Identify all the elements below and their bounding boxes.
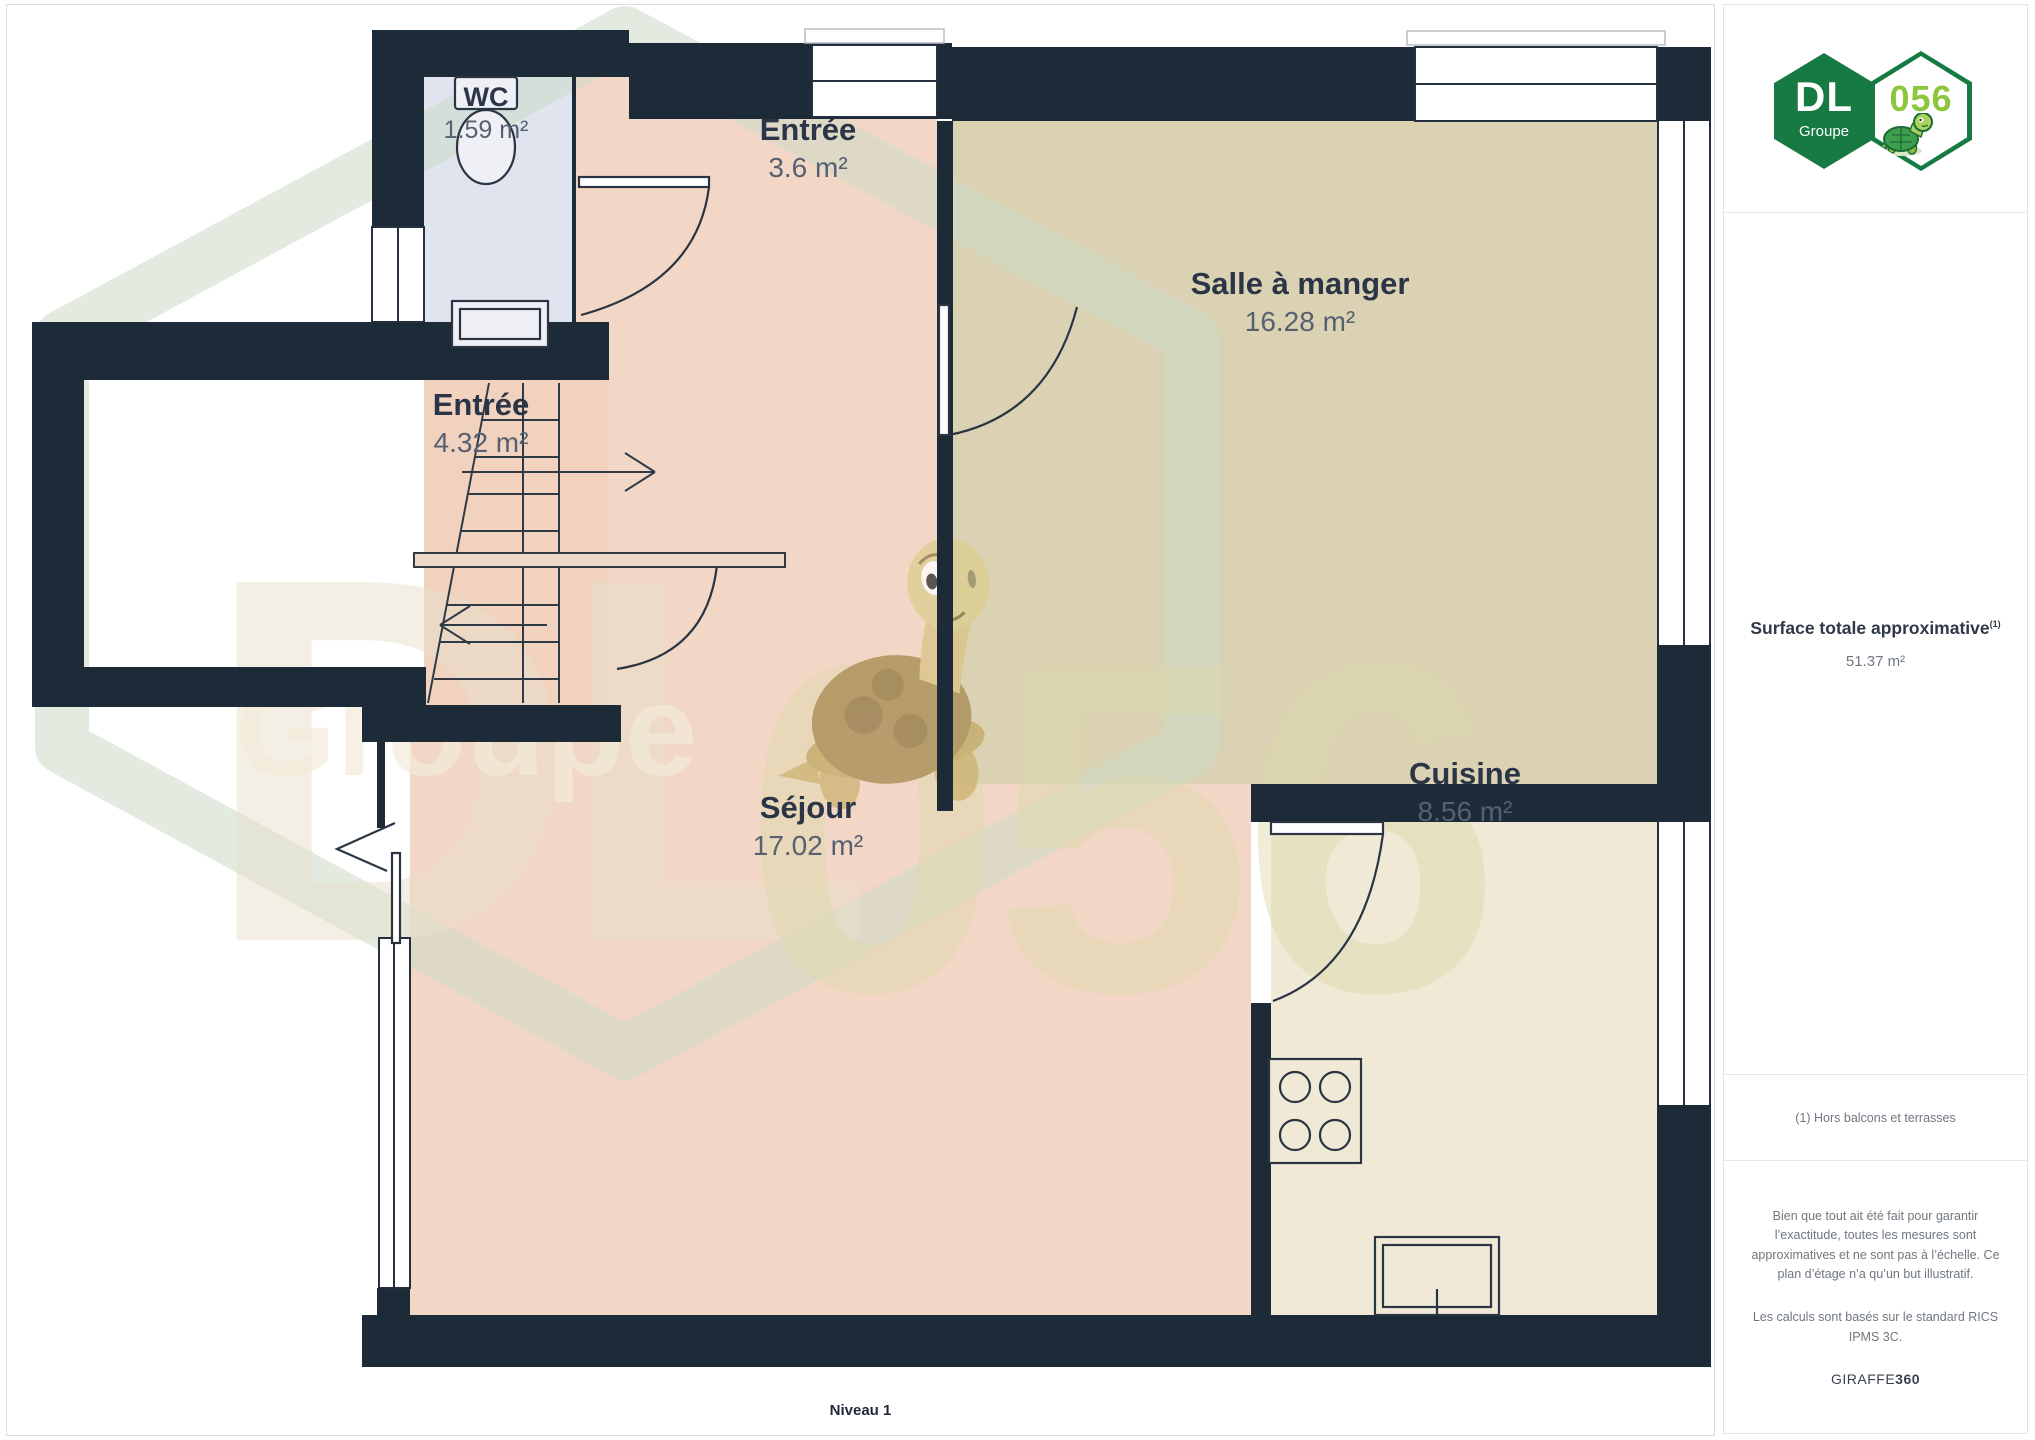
standard-text: Les calculs sont basés sur le standard R…: [1750, 1308, 2001, 1347]
room-area: 3.6 m²: [760, 150, 856, 185]
sidebar: 056 DL Groupe: [1723, 4, 2028, 1434]
door-leaf-wc: [579, 177, 709, 187]
surface-total-label: Surface totale approximative(1): [1750, 618, 2000, 639]
wall-balcony-left: [32, 322, 84, 707]
wall-bottom: [362, 1315, 1711, 1367]
surface-total-value: 51.37 m²: [1846, 653, 1905, 670]
wall-balcony-bottom: [32, 667, 426, 707]
room-label-wc: WC 1.59 m²: [444, 81, 529, 146]
wall-sejour-left-upper: [377, 742, 385, 828]
floor-plan-drawing: DL 056 Groupe: [7, 5, 1714, 1435]
wc-sink-icon: [452, 301, 548, 347]
stove-icon: [1269, 1059, 1361, 1163]
room-label-sejour: Séjour 17.02 m²: [753, 789, 864, 863]
room-area: 1.59 m²: [444, 115, 529, 146]
footnote-section: (1) Hors balcons et terrasses: [1724, 1075, 2027, 1161]
surface-section: Surface totale approximative(1) 51.37 m²: [1724, 213, 2027, 1075]
room-area: 8.56 m²: [1409, 794, 1521, 829]
surface-footnote-marker: (1): [1990, 619, 2001, 629]
threesixty-text: 360: [1895, 1371, 1920, 1387]
logo-hexagon-056: 056: [1870, 51, 1972, 171]
surface-total-text: Surface totale approximative: [1750, 618, 1989, 638]
room-area: 17.02 m²: [753, 828, 864, 863]
room-name: Entrée: [433, 386, 529, 425]
wall-sejour-left-lower: [377, 1288, 410, 1317]
door-leaf-balcony: [392, 853, 400, 943]
wall-right-lower: [1657, 1105, 1711, 1317]
logo-hexagon-dl: DL Groupe: [1774, 53, 1874, 169]
disclaimer-section: Bien que tout ait été fait pour garantir…: [1724, 1161, 2027, 1433]
room-name: Entrée: [760, 111, 856, 150]
logo-section: 056 DL Groupe: [1724, 5, 2027, 213]
window-sill-dining: [1407, 31, 1665, 45]
level-label: Niveau 1: [830, 1402, 892, 1419]
logo-dl-text: DL: [1774, 73, 1874, 121]
room-name: Salle à manger: [1191, 265, 1410, 304]
giraffe360-brand: GIRAFFE360: [1831, 1371, 1920, 1387]
room-name: Séjour: [753, 789, 864, 828]
room-name: WC: [444, 81, 529, 115]
page: DL 056 Groupe: [0, 0, 2035, 1440]
turtle-logo-icon: [1878, 113, 1936, 157]
floor-plan: DL 056 Groupe: [6, 4, 1715, 1436]
wall-below-stairs: [362, 705, 621, 742]
disclaimer-text: Bien que tout ait été fait pour garantir…: [1750, 1207, 2001, 1285]
room-area: 16.28 m²: [1191, 304, 1410, 339]
window-sill-entree: [805, 29, 944, 43]
room-label-entree-bas: Entrée 4.32 m²: [433, 386, 529, 460]
room-label-cuisine: Cuisine 8.56 m²: [1409, 755, 1521, 829]
wall-corridor-dining: [937, 121, 953, 811]
room-area: 4.32 m²: [433, 425, 529, 460]
stair-landing-edge: [414, 553, 785, 567]
door-leaf-kitchen: [1271, 822, 1383, 834]
logo-groupe-text: Groupe: [1774, 123, 1874, 140]
door-leaf-dining: [939, 305, 949, 435]
wall-right-mid: [1657, 645, 1711, 784]
room-name: Cuisine: [1409, 755, 1521, 794]
giraffe-text: GIRAFFE: [1831, 1371, 1895, 1387]
room-label-entree-haut: Entrée 3.6 m²: [760, 111, 856, 185]
room-label-salle-a-manger: Salle à manger 16.28 m²: [1191, 265, 1410, 339]
wall-wc-entree-divider: [572, 75, 576, 352]
footnote-text: (1) Hors balcons et terrasses: [1795, 1111, 1955, 1125]
